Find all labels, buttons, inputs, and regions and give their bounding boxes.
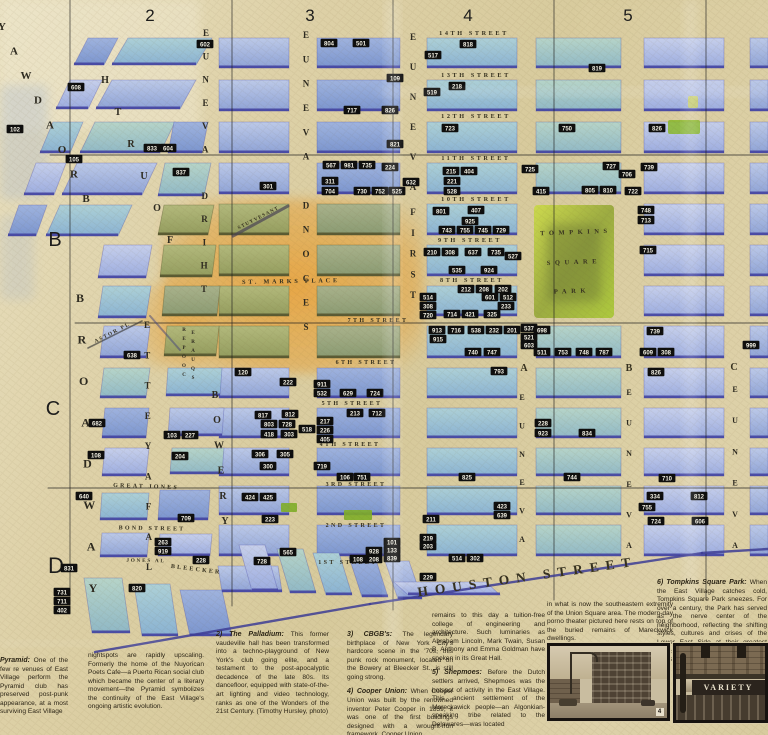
- note-paragraph: Pyramid: One of the few re venues of Eas…: [0, 656, 68, 717]
- photo-facade: [676, 646, 765, 676]
- photo-car: [559, 699, 577, 706]
- photo-tree-trunk: [680, 653, 686, 712]
- note-heading: 3) CBGB's:: [347, 631, 402, 638]
- note-column: remains to this day a tuition-free colle…: [432, 612, 545, 734]
- note-heading: Pyramid:: [0, 657, 34, 664]
- photo-roof-post: [737, 646, 746, 658]
- note-paragraph: 2) The Palladium: This former vaudeville…: [216, 630, 329, 717]
- east-village-map-page: 14TH STREET13TH STREET12TH STREET11TH ST…: [0, 0, 768, 735]
- photo-corner-label: 4: [656, 708, 664, 716]
- map-notes: Pyramid: One of the few re venues of Eas…: [0, 0, 768, 735]
- photo-street-scene: 4: [547, 643, 670, 721]
- note-heading: 4) Cooper Union:: [347, 688, 411, 695]
- note-column: 2) The Palladium: This former vaudeville…: [216, 630, 329, 722]
- note-column: Pyramid: One of the few re venues of Eas…: [0, 656, 68, 722]
- photo-car: [641, 700, 655, 706]
- note-heading: 6) Tompkins Square Park:: [657, 579, 750, 586]
- photo-variety-theater: VARIETY: [673, 643, 768, 723]
- photo-building: [592, 652, 651, 705]
- photo-storefront: [676, 695, 765, 720]
- photo-roof-post: [701, 646, 710, 658]
- photo-cornice: [676, 674, 765, 679]
- variety-marquee-sign: VARIETY: [692, 680, 765, 695]
- note-paragraph: in what is now the southeastern extremit…: [547, 601, 673, 644]
- note-paragraph: remains to this day a tuition-free colle…: [432, 612, 545, 663]
- photo-lamppost: [570, 652, 572, 694]
- photo-lamppost-arm: [570, 652, 598, 662]
- note-paragraph: nightspots are rapidly upscaling. Former…: [88, 652, 204, 712]
- note-column: in what is now the southeastern extremit…: [547, 601, 673, 649]
- note-heading: 2) The Palladium:: [216, 631, 291, 638]
- note-heading: 5) Shepmoes:: [432, 669, 488, 676]
- note-column: nightspots are rapidly upscaling. Former…: [88, 652, 204, 717]
- note-paragraph: 5) Shepmoes: Before the Dutch settlers a…: [432, 668, 545, 729]
